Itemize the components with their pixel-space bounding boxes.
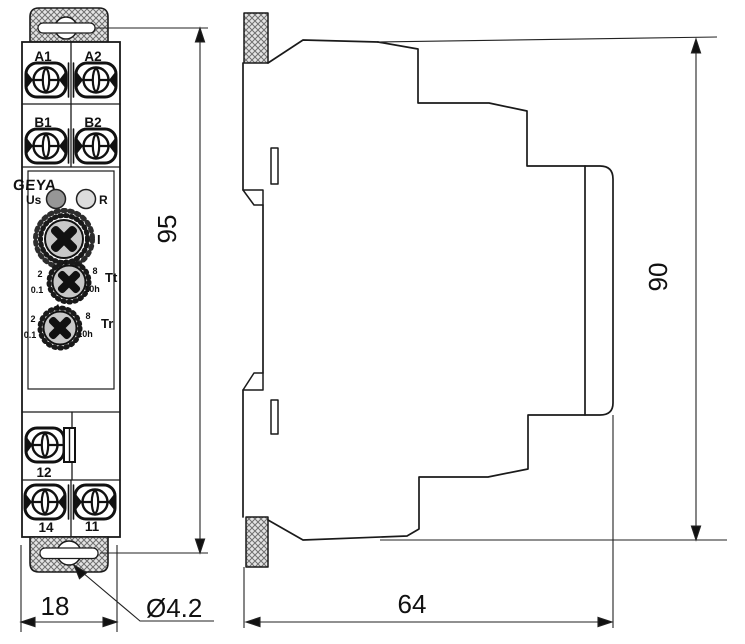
svg-text:0.1: 0.1 (31, 285, 44, 295)
dial-label-tr: Tr (101, 316, 113, 331)
svg-text:4: 4 (62, 258, 67, 268)
terminal-12-screw (26, 428, 64, 462)
dimension-90 (378, 37, 727, 540)
terminal-14-screw (25, 485, 65, 519)
terminal-label-11: 11 (85, 519, 100, 534)
terminal-a2-screw (76, 63, 116, 97)
dimensions (21, 28, 727, 632)
svg-text:4: 4 (54, 303, 59, 313)
svg-text:2: 2 (30, 314, 35, 324)
led-label-r: R (99, 193, 108, 207)
led-label-us: Us (26, 193, 42, 207)
dial-label-i: I (97, 232, 101, 247)
svg-text:8: 8 (92, 266, 97, 276)
svg-text:8: 8 (85, 311, 90, 321)
side-top-clip (244, 13, 268, 63)
side-bottom-clip (246, 517, 268, 567)
terminal-label-14: 14 (38, 520, 54, 535)
terminal-b2-screw (76, 129, 116, 163)
top-mounting-tab (30, 8, 108, 42)
technical-drawing-page: A1 A2 B1 B2 (0, 0, 745, 644)
side-slot-bottom (271, 400, 278, 434)
svg-text:0.1: 0.1 (24, 330, 37, 340)
terminal-label-12: 12 (36, 465, 51, 480)
dim-text-90: 90 (643, 263, 673, 292)
bottom-mounting-tab (30, 537, 108, 572)
side-view (243, 13, 613, 567)
terminal-11-screw (75, 485, 115, 519)
dim-text-95: 95 (152, 215, 182, 244)
dim-text-hole-diameter: Ø4.2 (146, 593, 202, 623)
relay-dimension-drawing: A1 A2 B1 B2 (0, 0, 745, 644)
terminal-a1-screw (26, 63, 66, 97)
dim-text-64: 64 (398, 589, 427, 619)
svg-text:10h: 10h (77, 329, 93, 339)
dial-label-tt: Tt (105, 270, 118, 285)
front-view: A1 A2 B1 B2 (12, 8, 120, 572)
svg-text:10h: 10h (84, 284, 100, 294)
led-r-icon (77, 190, 96, 209)
svg-text:2: 2 (37, 269, 42, 279)
terminal-b1-screw (26, 129, 66, 163)
led-us-icon (47, 190, 66, 209)
dim-text-18: 18 (41, 591, 70, 621)
side-slot-top (271, 148, 278, 184)
dimension-64 (244, 415, 613, 628)
